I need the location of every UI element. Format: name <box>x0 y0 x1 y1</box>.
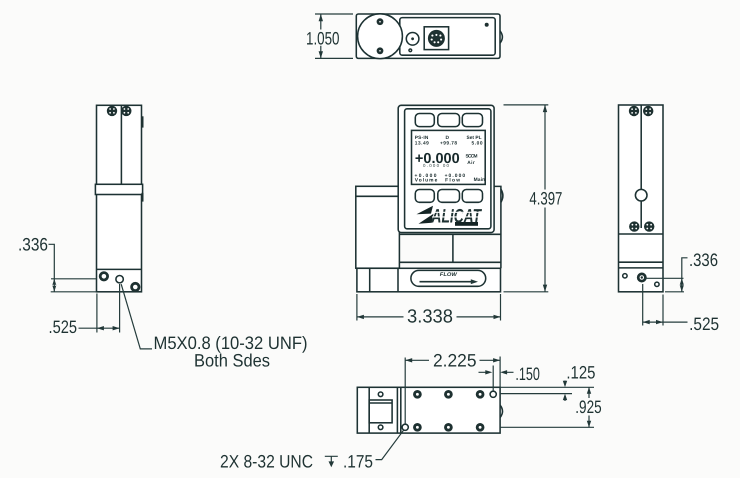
svg-text:FLOW: FLOW <box>440 272 458 278</box>
svg-text:PS-IN: PS-IN <box>415 135 429 141</box>
svg-text:.150: .150 <box>515 364 540 384</box>
svg-text:+99.78: +99.78 <box>440 140 457 146</box>
svg-text:13.49: 13.49 <box>415 140 429 146</box>
svg-text:Set PL: Set PL <box>467 135 482 141</box>
svg-text:2.225: 2.225 <box>433 351 477 371</box>
svg-text:.336: .336 <box>689 250 718 270</box>
svg-text:SCCM: SCCM <box>466 153 478 159</box>
svg-text:.525: .525 <box>49 317 78 337</box>
svg-text:2X 8-32 UNC: 2X 8-32 UNC <box>220 451 313 471</box>
svg-text:D: D <box>446 135 450 141</box>
svg-text:4.397: 4.397 <box>529 189 562 209</box>
svg-text:Air: Air <box>467 160 475 166</box>
svg-text:0.000 00: 0.000 00 <box>423 163 450 168</box>
svg-text:.925: .925 <box>575 397 601 417</box>
svg-text:.125: .125 <box>566 363 595 383</box>
svg-text:.175: .175 <box>343 451 373 471</box>
svg-text:Main: Main <box>474 177 486 183</box>
svg-text:1.050: 1.050 <box>306 28 340 48</box>
svg-text:Both Sdes: Both Sdes <box>194 351 270 371</box>
svg-text:Volume: Volume <box>415 177 438 183</box>
svg-text:.525: .525 <box>689 314 719 334</box>
svg-text:Flow: Flow <box>445 177 460 183</box>
svg-text:.336: .336 <box>18 235 48 255</box>
svg-text:5.00: 5.00 <box>472 140 483 146</box>
svg-text:3.338: 3.338 <box>407 307 453 328</box>
